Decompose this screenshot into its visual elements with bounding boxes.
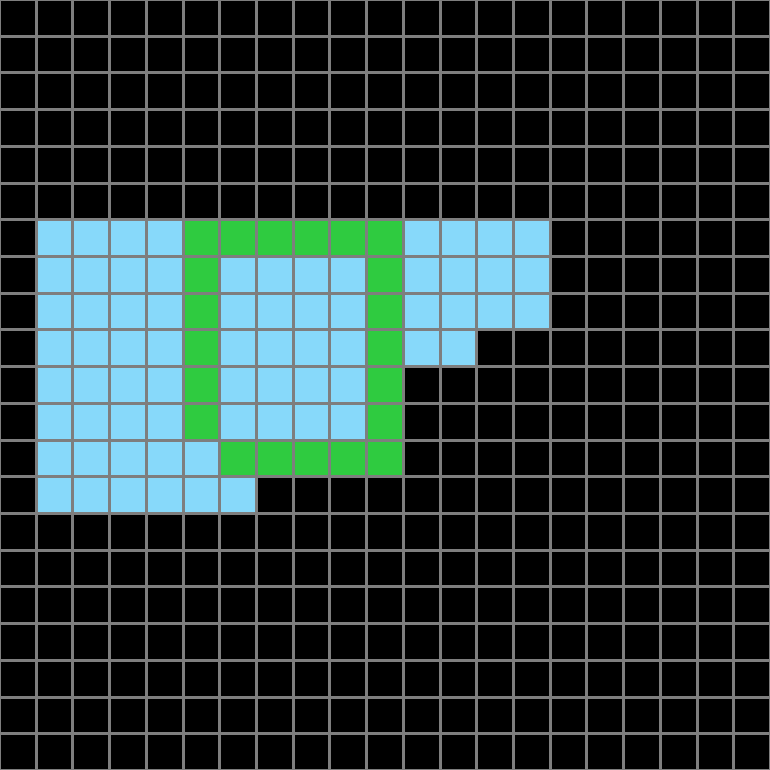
- grid-cell-r5-c12-empty[interactable]: [442, 185, 476, 219]
- grid-cell-r9-c0-empty[interactable]: [1, 331, 35, 365]
- grid-cell-r3-c3-empty[interactable]: [111, 111, 145, 145]
- grid-cell-r11-c11-empty[interactable]: [405, 405, 439, 439]
- grid-cell-r3-c13-empty[interactable]: [478, 111, 512, 145]
- grid-cell-r12-c9-green[interactable]: [331, 442, 365, 476]
- grid-cell-r2-c7-empty[interactable]: [258, 74, 292, 108]
- grid-cell-r17-c12-empty[interactable]: [442, 625, 476, 659]
- grid-cell-r19-c12-empty[interactable]: [442, 699, 476, 733]
- grid-cell-r0-c16-empty[interactable]: [588, 1, 622, 35]
- grid-cell-r10-c5-green[interactable]: [185, 368, 219, 402]
- grid-cell-r12-c3-blue[interactable]: [111, 442, 145, 476]
- grid-cell-r1-c10-empty[interactable]: [368, 38, 402, 72]
- grid-cell-r4-c14-empty[interactable]: [515, 148, 549, 182]
- grid-cell-r20-c19-empty[interactable]: [699, 735, 733, 769]
- grid-cell-r6-c18-empty[interactable]: [662, 221, 696, 255]
- grid-cell-r4-c5-empty[interactable]: [185, 148, 219, 182]
- grid-cell-r15-c6-empty[interactable]: [221, 552, 255, 586]
- grid-cell-r19-c1-empty[interactable]: [38, 699, 72, 733]
- grid-cell-r1-c12-empty[interactable]: [442, 38, 476, 72]
- grid-cell-r19-c14-empty[interactable]: [515, 699, 549, 733]
- grid-cell-r1-c0-empty[interactable]: [1, 38, 35, 72]
- grid-cell-r14-c18-empty[interactable]: [662, 515, 696, 549]
- grid-cell-r3-c20-empty[interactable]: [735, 111, 769, 145]
- grid-cell-r4-c12-empty[interactable]: [442, 148, 476, 182]
- grid-cell-r20-c1-empty[interactable]: [38, 735, 72, 769]
- grid-cell-r11-c1-blue[interactable]: [38, 405, 72, 439]
- grid-cell-r15-c12-empty[interactable]: [442, 552, 476, 586]
- grid-cell-r16-c4-empty[interactable]: [148, 588, 182, 622]
- grid-cell-r14-c1-empty[interactable]: [38, 515, 72, 549]
- grid-cell-r10-c18-empty[interactable]: [662, 368, 696, 402]
- grid-cell-r4-c19-empty[interactable]: [699, 148, 733, 182]
- grid-cell-r1-c13-empty[interactable]: [478, 38, 512, 72]
- grid-cell-r17-c7-empty[interactable]: [258, 625, 292, 659]
- grid-cell-r8-c13-blue[interactable]: [478, 295, 512, 329]
- grid-cell-r17-c11-empty[interactable]: [405, 625, 439, 659]
- grid-cell-r11-c9-blue[interactable]: [331, 405, 365, 439]
- grid-cell-r0-c20-empty[interactable]: [735, 1, 769, 35]
- grid-cell-r9-c12-blue[interactable]: [442, 331, 476, 365]
- grid-cell-r3-c17-empty[interactable]: [625, 111, 659, 145]
- grid-cell-r8-c5-green[interactable]: [185, 295, 219, 329]
- grid-cell-r14-c17-empty[interactable]: [625, 515, 659, 549]
- grid-cell-r20-c2-empty[interactable]: [74, 735, 108, 769]
- grid-cell-r15-c20-empty[interactable]: [735, 552, 769, 586]
- grid-cell-r14-c6-empty[interactable]: [221, 515, 255, 549]
- grid-cell-r11-c8-blue[interactable]: [295, 405, 329, 439]
- grid-cell-r8-c7-blue[interactable]: [258, 295, 292, 329]
- grid-cell-r4-c7-empty[interactable]: [258, 148, 292, 182]
- grid-cell-r20-c10-empty[interactable]: [368, 735, 402, 769]
- grid-cell-r9-c18-empty[interactable]: [662, 331, 696, 365]
- grid-cell-r8-c12-blue[interactable]: [442, 295, 476, 329]
- grid-cell-r9-c11-blue[interactable]: [405, 331, 439, 365]
- grid-cell-r17-c9-empty[interactable]: [331, 625, 365, 659]
- grid-cell-r6-c1-blue[interactable]: [38, 221, 72, 255]
- grid-cell-r16-c10-empty[interactable]: [368, 588, 402, 622]
- grid-cell-r13-c3-blue[interactable]: [111, 478, 145, 512]
- grid-cell-r14-c9-empty[interactable]: [331, 515, 365, 549]
- grid-cell-r6-c2-blue[interactable]: [74, 221, 108, 255]
- grid-cell-r3-c15-empty[interactable]: [552, 111, 586, 145]
- grid-cell-r5-c14-empty[interactable]: [515, 185, 549, 219]
- grid-cell-r15-c18-empty[interactable]: [662, 552, 696, 586]
- grid-cell-r2-c8-empty[interactable]: [295, 74, 329, 108]
- grid-cell-r10-c11-empty[interactable]: [405, 368, 439, 402]
- grid-cell-r13-c6-blue[interactable]: [221, 478, 255, 512]
- grid-cell-r11-c0-empty[interactable]: [1, 405, 35, 439]
- grid-cell-r4-c0-empty[interactable]: [1, 148, 35, 182]
- grid-cell-r12-c0-empty[interactable]: [1, 442, 35, 476]
- grid-cell-r0-c17-empty[interactable]: [625, 1, 659, 35]
- grid-cell-r6-c0-empty[interactable]: [1, 221, 35, 255]
- grid-cell-r7-c1-blue[interactable]: [38, 258, 72, 292]
- grid-cell-r9-c13-empty[interactable]: [478, 331, 512, 365]
- grid-cell-r17-c13-empty[interactable]: [478, 625, 512, 659]
- grid-cell-r8-c4-blue[interactable]: [148, 295, 182, 329]
- grid-cell-r9-c8-blue[interactable]: [295, 331, 329, 365]
- grid-cell-r3-c9-empty[interactable]: [331, 111, 365, 145]
- grid-cell-r2-c3-empty[interactable]: [111, 74, 145, 108]
- grid-cell-r3-c5-empty[interactable]: [185, 111, 219, 145]
- grid-cell-r4-c13-empty[interactable]: [478, 148, 512, 182]
- grid-cell-r2-c0-empty[interactable]: [1, 74, 35, 108]
- grid-cell-r12-c13-empty[interactable]: [478, 442, 512, 476]
- grid-cell-r11-c17-empty[interactable]: [625, 405, 659, 439]
- grid-cell-r5-c6-empty[interactable]: [221, 185, 255, 219]
- grid-cell-r15-c13-empty[interactable]: [478, 552, 512, 586]
- grid-cell-r16-c8-empty[interactable]: [295, 588, 329, 622]
- grid-cell-r10-c12-empty[interactable]: [442, 368, 476, 402]
- grid-cell-r15-c4-empty[interactable]: [148, 552, 182, 586]
- grid-cell-r18-c11-empty[interactable]: [405, 662, 439, 696]
- grid-cell-r10-c2-blue[interactable]: [74, 368, 108, 402]
- grid-cell-r11-c19-empty[interactable]: [699, 405, 733, 439]
- grid-cell-r4-c16-empty[interactable]: [588, 148, 622, 182]
- grid-cell-r10-c1-blue[interactable]: [38, 368, 72, 402]
- grid-cell-r3-c8-empty[interactable]: [295, 111, 329, 145]
- grid-cell-r3-c6-empty[interactable]: [221, 111, 255, 145]
- grid-cell-r17-c19-empty[interactable]: [699, 625, 733, 659]
- grid-cell-r14-c15-empty[interactable]: [552, 515, 586, 549]
- grid-cell-r15-c16-empty[interactable]: [588, 552, 622, 586]
- grid-cell-r7-c16-empty[interactable]: [588, 258, 622, 292]
- grid-cell-r12-c16-empty[interactable]: [588, 442, 622, 476]
- grid-cell-r20-c7-empty[interactable]: [258, 735, 292, 769]
- grid-cell-r6-c5-green[interactable]: [185, 221, 219, 255]
- grid-cell-r3-c19-empty[interactable]: [699, 111, 733, 145]
- grid-cell-r17-c4-empty[interactable]: [148, 625, 182, 659]
- grid-cell-r14-c3-empty[interactable]: [111, 515, 145, 549]
- grid-cell-r2-c18-empty[interactable]: [662, 74, 696, 108]
- grid-cell-r11-c5-green[interactable]: [185, 405, 219, 439]
- grid-cell-r9-c2-blue[interactable]: [74, 331, 108, 365]
- grid-cell-r14-c2-empty[interactable]: [74, 515, 108, 549]
- grid-cell-r19-c5-empty[interactable]: [185, 699, 219, 733]
- grid-cell-r8-c11-blue[interactable]: [405, 295, 439, 329]
- grid-cell-r13-c15-empty[interactable]: [552, 478, 586, 512]
- grid-cell-r16-c12-empty[interactable]: [442, 588, 476, 622]
- grid-cell-r10-c10-green[interactable]: [368, 368, 402, 402]
- grid-cell-r19-c2-empty[interactable]: [74, 699, 108, 733]
- grid-cell-r8-c0-empty[interactable]: [1, 295, 35, 329]
- grid-cell-r17-c18-empty[interactable]: [662, 625, 696, 659]
- grid-cell-r5-c2-empty[interactable]: [74, 185, 108, 219]
- grid-cell-r20-c8-empty[interactable]: [295, 735, 329, 769]
- grid-cell-r17-c2-empty[interactable]: [74, 625, 108, 659]
- grid-cell-r20-c17-empty[interactable]: [625, 735, 659, 769]
- grid-cell-r7-c13-blue[interactable]: [478, 258, 512, 292]
- grid-cell-r12-c8-green[interactable]: [295, 442, 329, 476]
- grid-cell-r8-c10-green[interactable]: [368, 295, 402, 329]
- grid-cell-r4-c9-empty[interactable]: [331, 148, 365, 182]
- grid-cell-r6-c13-blue[interactable]: [478, 221, 512, 255]
- grid-cell-r2-c11-empty[interactable]: [405, 74, 439, 108]
- grid-cell-r17-c5-empty[interactable]: [185, 625, 219, 659]
- grid-cell-r18-c3-empty[interactable]: [111, 662, 145, 696]
- grid-cell-r0-c15-empty[interactable]: [552, 1, 586, 35]
- grid-cell-r0-c5-empty[interactable]: [185, 1, 219, 35]
- grid-cell-r3-c7-empty[interactable]: [258, 111, 292, 145]
- grid-cell-r11-c20-empty[interactable]: [735, 405, 769, 439]
- grid-cell-r9-c7-blue[interactable]: [258, 331, 292, 365]
- grid-cell-r7-c12-blue[interactable]: [442, 258, 476, 292]
- grid-cell-r16-c2-empty[interactable]: [74, 588, 108, 622]
- grid-cell-r20-c5-empty[interactable]: [185, 735, 219, 769]
- grid-cell-r1-c5-empty[interactable]: [185, 38, 219, 72]
- grid-cell-r15-c3-empty[interactable]: [111, 552, 145, 586]
- grid-cell-r6-c11-blue[interactable]: [405, 221, 439, 255]
- grid-cell-r6-c9-green[interactable]: [331, 221, 365, 255]
- grid-cell-r20-c6-empty[interactable]: [221, 735, 255, 769]
- grid-cell-r18-c14-empty[interactable]: [515, 662, 549, 696]
- grid-cell-r13-c11-empty[interactable]: [405, 478, 439, 512]
- grid-cell-r7-c11-blue[interactable]: [405, 258, 439, 292]
- grid-cell-r2-c16-empty[interactable]: [588, 74, 622, 108]
- grid-cell-r17-c20-empty[interactable]: [735, 625, 769, 659]
- grid-cell-r1-c14-empty[interactable]: [515, 38, 549, 72]
- grid-cell-r9-c5-green[interactable]: [185, 331, 219, 365]
- grid-cell-r3-c16-empty[interactable]: [588, 111, 622, 145]
- grid-cell-r10-c8-blue[interactable]: [295, 368, 329, 402]
- grid-cell-r4-c11-empty[interactable]: [405, 148, 439, 182]
- grid-cell-r6-c14-blue[interactable]: [515, 221, 549, 255]
- grid-cell-r19-c20-empty[interactable]: [735, 699, 769, 733]
- grid-cell-r12-c1-blue[interactable]: [38, 442, 72, 476]
- grid-cell-r3-c10-empty[interactable]: [368, 111, 402, 145]
- grid-cell-r15-c7-empty[interactable]: [258, 552, 292, 586]
- grid-cell-r20-c20-empty[interactable]: [735, 735, 769, 769]
- grid-cell-r13-c4-blue[interactable]: [148, 478, 182, 512]
- grid-cell-r8-c15-empty[interactable]: [552, 295, 586, 329]
- grid-cell-r16-c18-empty[interactable]: [662, 588, 696, 622]
- grid-cell-r5-c19-empty[interactable]: [699, 185, 733, 219]
- grid-cell-r11-c14-empty[interactable]: [515, 405, 549, 439]
- grid-cell-r8-c1-blue[interactable]: [38, 295, 72, 329]
- grid-cell-r14-c7-empty[interactable]: [258, 515, 292, 549]
- grid-cell-r0-c13-empty[interactable]: [478, 1, 512, 35]
- grid-cell-r20-c18-empty[interactable]: [662, 735, 696, 769]
- grid-cell-r2-c20-empty[interactable]: [735, 74, 769, 108]
- grid-cell-r14-c20-empty[interactable]: [735, 515, 769, 549]
- grid-cell-r20-c15-empty[interactable]: [552, 735, 586, 769]
- grid-cell-r9-c16-empty[interactable]: [588, 331, 622, 365]
- grid-cell-r0-c0-empty[interactable]: [1, 1, 35, 35]
- grid-cell-r2-c14-empty[interactable]: [515, 74, 549, 108]
- grid-cell-r13-c12-empty[interactable]: [442, 478, 476, 512]
- grid-cell-r12-c2-blue[interactable]: [74, 442, 108, 476]
- grid-cell-r18-c8-empty[interactable]: [295, 662, 329, 696]
- grid-cell-r18-c0-empty[interactable]: [1, 662, 35, 696]
- grid-cell-r14-c16-empty[interactable]: [588, 515, 622, 549]
- grid-cell-r3-c0-empty[interactable]: [1, 111, 35, 145]
- grid-cell-r19-c11-empty[interactable]: [405, 699, 439, 733]
- grid-cell-r9-c3-blue[interactable]: [111, 331, 145, 365]
- grid-cell-r0-c2-empty[interactable]: [74, 1, 108, 35]
- grid-cell-r11-c6-blue[interactable]: [221, 405, 255, 439]
- grid-cell-r16-c13-empty[interactable]: [478, 588, 512, 622]
- grid-cell-r17-c14-empty[interactable]: [515, 625, 549, 659]
- grid-cell-r12-c19-empty[interactable]: [699, 442, 733, 476]
- grid-cell-r18-c5-empty[interactable]: [185, 662, 219, 696]
- grid-cell-r18-c16-empty[interactable]: [588, 662, 622, 696]
- grid-cell-r7-c20-empty[interactable]: [735, 258, 769, 292]
- grid-cell-r17-c6-empty[interactable]: [221, 625, 255, 659]
- grid-cell-r6-c10-green[interactable]: [368, 221, 402, 255]
- grid-cell-r18-c19-empty[interactable]: [699, 662, 733, 696]
- grid-cell-r1-c16-empty[interactable]: [588, 38, 622, 72]
- grid-cell-r4-c17-empty[interactable]: [625, 148, 659, 182]
- grid-cell-r2-c4-empty[interactable]: [148, 74, 182, 108]
- grid-cell-r15-c15-empty[interactable]: [552, 552, 586, 586]
- grid-cell-r8-c19-empty[interactable]: [699, 295, 733, 329]
- grid-cell-r10-c6-blue[interactable]: [221, 368, 255, 402]
- grid-cell-r19-c16-empty[interactable]: [588, 699, 622, 733]
- grid-cell-r16-c19-empty[interactable]: [699, 588, 733, 622]
- grid-cell-r0-c7-empty[interactable]: [258, 1, 292, 35]
- grid-cell-r13-c14-empty[interactable]: [515, 478, 549, 512]
- grid-cell-r19-c15-empty[interactable]: [552, 699, 586, 733]
- grid-cell-r5-c16-empty[interactable]: [588, 185, 622, 219]
- grid-cell-r14-c11-empty[interactable]: [405, 515, 439, 549]
- grid-cell-r10-c15-empty[interactable]: [552, 368, 586, 402]
- grid-cell-r1-c9-empty[interactable]: [331, 38, 365, 72]
- grid-cell-r13-c17-empty[interactable]: [625, 478, 659, 512]
- grid-cell-r11-c13-empty[interactable]: [478, 405, 512, 439]
- grid-cell-r1-c11-empty[interactable]: [405, 38, 439, 72]
- grid-cell-r12-c11-empty[interactable]: [405, 442, 439, 476]
- grid-cell-r8-c14-blue[interactable]: [515, 295, 549, 329]
- grid-cell-r14-c8-empty[interactable]: [295, 515, 329, 549]
- grid-cell-r4-c8-empty[interactable]: [295, 148, 329, 182]
- grid-cell-r19-c7-empty[interactable]: [258, 699, 292, 733]
- grid-cell-r5-c3-empty[interactable]: [111, 185, 145, 219]
- grid-cell-r6-c4-blue[interactable]: [148, 221, 182, 255]
- grid-cell-r11-c4-blue[interactable]: [148, 405, 182, 439]
- grid-cell-r16-c7-empty[interactable]: [258, 588, 292, 622]
- grid-cell-r12-c12-empty[interactable]: [442, 442, 476, 476]
- grid-cell-r18-c7-empty[interactable]: [258, 662, 292, 696]
- grid-cell-r13-c19-empty[interactable]: [699, 478, 733, 512]
- grid-cell-r4-c3-empty[interactable]: [111, 148, 145, 182]
- grid-cell-r16-c17-empty[interactable]: [625, 588, 659, 622]
- grid-cell-r19-c3-empty[interactable]: [111, 699, 145, 733]
- grid-cell-r9-c19-empty[interactable]: [699, 331, 733, 365]
- grid-cell-r9-c1-blue[interactable]: [38, 331, 72, 365]
- grid-cell-r1-c3-empty[interactable]: [111, 38, 145, 72]
- grid-cell-r15-c2-empty[interactable]: [74, 552, 108, 586]
- grid-cell-r0-c8-empty[interactable]: [295, 1, 329, 35]
- grid-cell-r10-c7-blue[interactable]: [258, 368, 292, 402]
- grid-cell-r17-c3-empty[interactable]: [111, 625, 145, 659]
- grid-cell-r15-c5-empty[interactable]: [185, 552, 219, 586]
- grid-cell-r10-c4-blue[interactable]: [148, 368, 182, 402]
- grid-cell-r9-c10-green[interactable]: [368, 331, 402, 365]
- grid-cell-r16-c1-empty[interactable]: [38, 588, 72, 622]
- grid-cell-r18-c4-empty[interactable]: [148, 662, 182, 696]
- grid-cell-r13-c16-empty[interactable]: [588, 478, 622, 512]
- grid-cell-r8-c6-blue[interactable]: [221, 295, 255, 329]
- grid-cell-r4-c18-empty[interactable]: [662, 148, 696, 182]
- grid-cell-r10-c9-blue[interactable]: [331, 368, 365, 402]
- grid-cell-r6-c7-green[interactable]: [258, 221, 292, 255]
- grid-cell-r3-c12-empty[interactable]: [442, 111, 476, 145]
- grid-cell-r4-c20-empty[interactable]: [735, 148, 769, 182]
- grid-cell-r5-c18-empty[interactable]: [662, 185, 696, 219]
- grid-cell-r8-c16-empty[interactable]: [588, 295, 622, 329]
- grid-cell-r18-c6-empty[interactable]: [221, 662, 255, 696]
- grid-cell-r1-c8-empty[interactable]: [295, 38, 329, 72]
- grid-cell-r1-c15-empty[interactable]: [552, 38, 586, 72]
- grid-cell-r2-c1-empty[interactable]: [38, 74, 72, 108]
- grid-cell-r19-c13-empty[interactable]: [478, 699, 512, 733]
- grid-cell-r17-c8-empty[interactable]: [295, 625, 329, 659]
- grid-cell-r7-c10-green[interactable]: [368, 258, 402, 292]
- grid-cell-r1-c7-empty[interactable]: [258, 38, 292, 72]
- grid-cell-r11-c3-blue[interactable]: [111, 405, 145, 439]
- grid-cell-r19-c17-empty[interactable]: [625, 699, 659, 733]
- grid-cell-r19-c8-empty[interactable]: [295, 699, 329, 733]
- grid-cell-r8-c3-blue[interactable]: [111, 295, 145, 329]
- grid-cell-r4-c2-empty[interactable]: [74, 148, 108, 182]
- grid-cell-r20-c3-empty[interactable]: [111, 735, 145, 769]
- grid-cell-r16-c20-empty[interactable]: [735, 588, 769, 622]
- grid-cell-r5-c20-empty[interactable]: [735, 185, 769, 219]
- grid-cell-r2-c6-empty[interactable]: [221, 74, 255, 108]
- grid-cell-r19-c0-empty[interactable]: [1, 699, 35, 733]
- grid-cell-r20-c4-empty[interactable]: [148, 735, 182, 769]
- grid-cell-r18-c9-empty[interactable]: [331, 662, 365, 696]
- grid-cell-r14-c12-empty[interactable]: [442, 515, 476, 549]
- grid-cell-r6-c17-empty[interactable]: [625, 221, 659, 255]
- grid-cell-r11-c10-green[interactable]: [368, 405, 402, 439]
- grid-cell-r13-c1-blue[interactable]: [38, 478, 72, 512]
- grid-cell-r13-c13-empty[interactable]: [478, 478, 512, 512]
- grid-cell-r8-c18-empty[interactable]: [662, 295, 696, 329]
- grid-cell-r9-c9-blue[interactable]: [331, 331, 365, 365]
- grid-cell-r19-c19-empty[interactable]: [699, 699, 733, 733]
- grid-cell-r1-c18-empty[interactable]: [662, 38, 696, 72]
- grid-cell-r13-c10-empty[interactable]: [368, 478, 402, 512]
- grid-cell-r20-c0-empty[interactable]: [1, 735, 35, 769]
- grid-cell-r1-c4-empty[interactable]: [148, 38, 182, 72]
- grid-cell-r14-c4-empty[interactable]: [148, 515, 182, 549]
- grid-cell-r10-c16-empty[interactable]: [588, 368, 622, 402]
- grid-cell-r20-c12-empty[interactable]: [442, 735, 476, 769]
- grid-cell-r6-c15-empty[interactable]: [552, 221, 586, 255]
- grid-cell-r2-c12-empty[interactable]: [442, 74, 476, 108]
- grid-cell-r3-c2-empty[interactable]: [74, 111, 108, 145]
- grid-cell-r8-c8-blue[interactable]: [295, 295, 329, 329]
- grid-cell-r10-c19-empty[interactable]: [699, 368, 733, 402]
- grid-cell-r7-c2-blue[interactable]: [74, 258, 108, 292]
- grid-cell-r5-c10-empty[interactable]: [368, 185, 402, 219]
- grid-cell-r7-c5-green[interactable]: [185, 258, 219, 292]
- grid-cell-r10-c13-empty[interactable]: [478, 368, 512, 402]
- grid-cell-r3-c14-empty[interactable]: [515, 111, 549, 145]
- grid-cell-r7-c7-blue[interactable]: [258, 258, 292, 292]
- grid-cell-r19-c6-empty[interactable]: [221, 699, 255, 733]
- grid-cell-r20-c9-empty[interactable]: [331, 735, 365, 769]
- grid-cell-r12-c18-empty[interactable]: [662, 442, 696, 476]
- grid-cell-r12-c5-blue[interactable]: [185, 442, 219, 476]
- grid-cell-r0-c19-empty[interactable]: [699, 1, 733, 35]
- grid-cell-r6-c3-blue[interactable]: [111, 221, 145, 255]
- grid-cell-r12-c4-blue[interactable]: [148, 442, 182, 476]
- grid-cell-r5-c5-empty[interactable]: [185, 185, 219, 219]
- grid-cell-r2-c15-empty[interactable]: [552, 74, 586, 108]
- grid-cell-r17-c10-empty[interactable]: [368, 625, 402, 659]
